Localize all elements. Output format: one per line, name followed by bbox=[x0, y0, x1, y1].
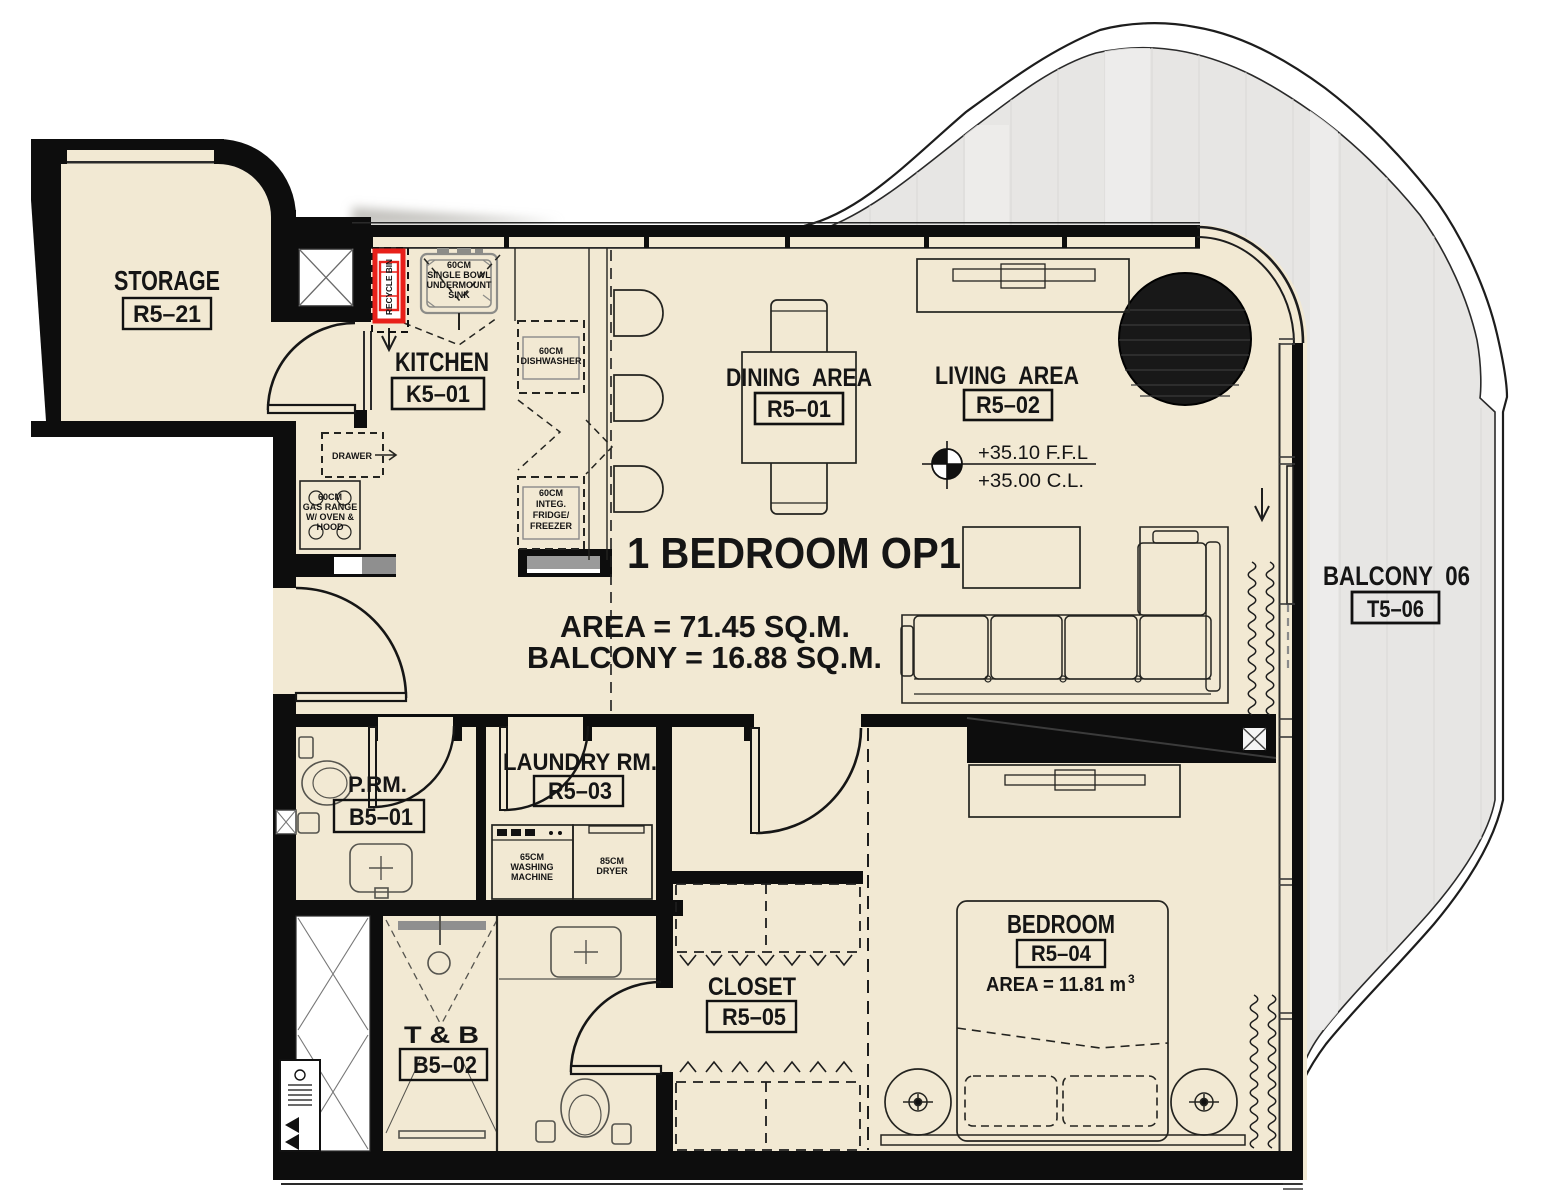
svg-text:T & B: T & B bbox=[404, 1022, 479, 1049]
svg-text:+35.10 F.F.L: +35.10 F.F.L bbox=[978, 443, 1088, 464]
svg-text:SINK: SINK bbox=[448, 290, 470, 300]
svg-text:STORAGE: STORAGE bbox=[114, 265, 220, 296]
svg-text:SINGLE BOWL: SINGLE BOWL bbox=[427, 270, 491, 280]
svg-text:LIVING AREA: LIVING AREA bbox=[935, 362, 1079, 390]
svg-text:WASHING: WASHING bbox=[510, 862, 553, 872]
svg-text:60CM: 60CM bbox=[318, 492, 342, 502]
svg-text:GAS RANGE: GAS RANGE bbox=[303, 502, 358, 512]
svg-text:BEDROOM: BEDROOM bbox=[1007, 909, 1115, 939]
svg-text:BALCONY = 16.88 SQ.M.: BALCONY = 16.88 SQ.M. bbox=[527, 640, 882, 675]
svg-text:P.RM.: P.RM. bbox=[348, 772, 407, 797]
svg-text:MACHINE: MACHINE bbox=[511, 872, 553, 882]
svg-text:R5–04: R5–04 bbox=[1031, 941, 1092, 966]
svg-text:HOOD: HOOD bbox=[317, 522, 345, 532]
svg-text:60CM: 60CM bbox=[539, 346, 563, 356]
svg-text:KITCHEN: KITCHEN bbox=[395, 347, 489, 377]
svg-text:FREEZER: FREEZER bbox=[530, 521, 573, 531]
svg-text:DISHWASHER: DISHWASHER bbox=[520, 356, 582, 366]
svg-text:BALCONY 06: BALCONY 06 bbox=[1323, 561, 1470, 591]
svg-text:UNDERMOUNT: UNDERMOUNT bbox=[427, 280, 492, 290]
svg-text:AREA = 11.81 m: AREA = 11.81 m bbox=[986, 974, 1126, 996]
svg-text:B5–02: B5–02 bbox=[413, 1052, 477, 1079]
svg-text:B5–01: B5–01 bbox=[349, 804, 413, 831]
svg-text:65CM: 65CM bbox=[520, 852, 544, 862]
svg-text:R5–03: R5–03 bbox=[548, 778, 612, 805]
svg-text:AREA = 71.45 SQ.M.: AREA = 71.45 SQ.M. bbox=[560, 609, 850, 644]
svg-text:3: 3 bbox=[1128, 972, 1135, 986]
svg-text:W/ OVEN &: W/ OVEN & bbox=[306, 512, 355, 522]
svg-text:LAUNDRY RM.: LAUNDRY RM. bbox=[503, 749, 657, 776]
svg-text:R5–21: R5–21 bbox=[133, 301, 201, 328]
svg-text:60CM: 60CM bbox=[539, 488, 563, 498]
svg-text:DRYER: DRYER bbox=[596, 866, 628, 876]
svg-text:R5–02: R5–02 bbox=[976, 392, 1040, 419]
svg-text:RECYCLE BIN: RECYCLE BIN bbox=[385, 259, 394, 315]
svg-text:R5–01: R5–01 bbox=[767, 396, 831, 423]
svg-text:R5–05: R5–05 bbox=[722, 1004, 786, 1031]
svg-text:INTEG.: INTEG. bbox=[536, 499, 566, 509]
svg-text:FRIDGE/: FRIDGE/ bbox=[533, 510, 570, 520]
svg-text:DRAWER: DRAWER bbox=[332, 451, 372, 461]
svg-text:1 BEDROOM OP1: 1 BEDROOM OP1 bbox=[627, 529, 961, 578]
svg-text:K5–01: K5–01 bbox=[406, 381, 470, 408]
svg-text:85CM: 85CM bbox=[600, 856, 624, 866]
svg-text:60CM: 60CM bbox=[447, 260, 471, 270]
svg-text:T5–06: T5–06 bbox=[1367, 596, 1424, 623]
svg-text:CLOSET: CLOSET bbox=[708, 973, 796, 1001]
svg-text:DINING AREA: DINING AREA bbox=[726, 364, 872, 392]
svg-text:+35.00 C.L.: +35.00 C.L. bbox=[978, 471, 1084, 492]
